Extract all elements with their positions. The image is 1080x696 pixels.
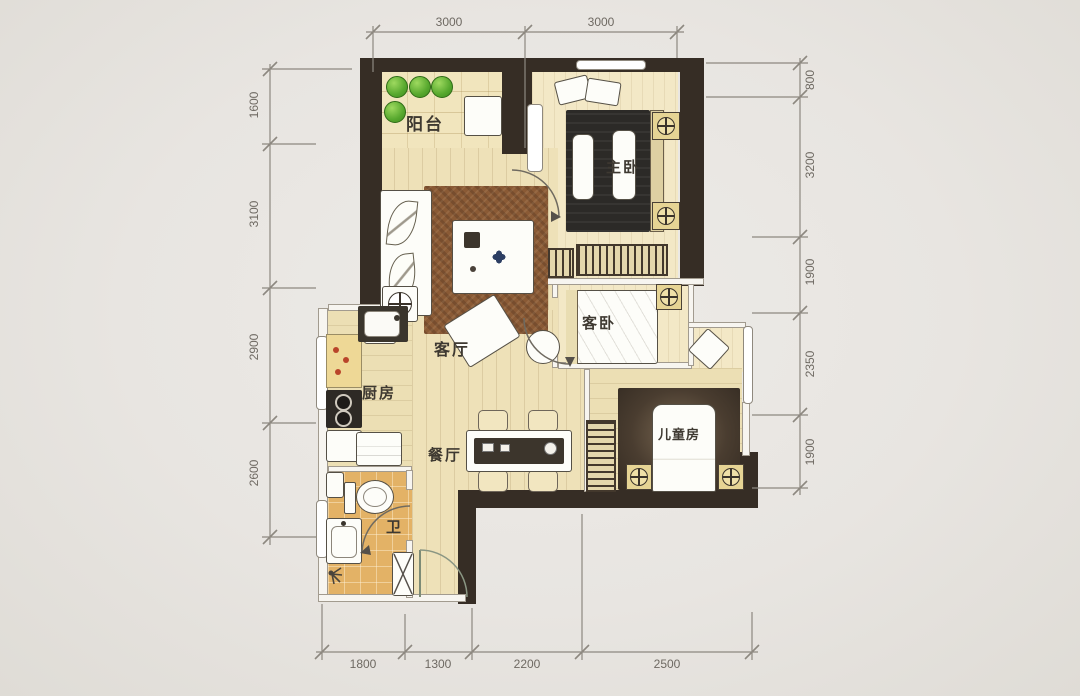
pillow xyxy=(572,134,594,200)
lamp-icon xyxy=(657,117,675,135)
cushion xyxy=(584,77,621,106)
wall-top xyxy=(360,58,704,72)
lamp-icon xyxy=(657,207,675,225)
dim-label: 1300 xyxy=(425,657,452,671)
dim-label: 1800 xyxy=(350,657,377,671)
dim-label: 1900 xyxy=(803,258,817,285)
dim-label: 1600 xyxy=(247,91,261,118)
bath-fixture xyxy=(326,472,344,498)
washbasin-inner xyxy=(331,526,357,558)
lamp-icon xyxy=(630,468,648,486)
dim-label: 3000 xyxy=(436,15,463,29)
dim-label: 2200 xyxy=(514,657,541,671)
dim-tick xyxy=(366,25,684,39)
wall-nook-top xyxy=(688,322,746,328)
plant-icon xyxy=(384,101,406,123)
dim-label: 2900 xyxy=(247,333,261,360)
dim-label: 2350 xyxy=(803,350,817,377)
wall-left-upper xyxy=(360,58,382,312)
room-label-master: 主卧 xyxy=(606,156,640,177)
wall-bottom-right-horizontal xyxy=(458,490,758,508)
toilet-bowl-inner xyxy=(363,487,387,507)
window-children-bay xyxy=(743,326,753,404)
duct-shaft xyxy=(392,552,414,596)
table-decor xyxy=(464,232,480,248)
basin-faucet-icon xyxy=(341,521,346,526)
stove-burner-icon xyxy=(335,394,352,411)
plant-icon xyxy=(386,76,408,98)
food-icon xyxy=(335,369,341,375)
window-master-top xyxy=(576,60,646,70)
room-label-bath: 卫 xyxy=(386,516,403,537)
dining-chair xyxy=(528,470,558,492)
wardrobe xyxy=(576,244,668,276)
food-icon xyxy=(333,347,339,353)
plate xyxy=(544,442,557,455)
entry-corridor-floor xyxy=(412,492,458,598)
fridge xyxy=(356,432,402,466)
dim-tick xyxy=(315,645,759,659)
children-bed xyxy=(652,404,716,492)
wall-right-upper xyxy=(680,58,704,286)
room-label-children: 儿童房 xyxy=(658,424,700,443)
lamp-icon xyxy=(660,288,678,306)
plant-icon xyxy=(409,76,431,98)
dish xyxy=(482,443,494,452)
dim-label: 3000 xyxy=(588,15,615,29)
dim-tick xyxy=(793,56,807,495)
toilet-bowl xyxy=(356,480,394,514)
stove xyxy=(326,390,362,428)
nightstand xyxy=(652,202,680,230)
food-icon xyxy=(343,357,349,363)
dining-chair xyxy=(478,410,508,432)
window-mid-vertical xyxy=(527,104,543,172)
dim-tick xyxy=(263,62,277,544)
dining-chair xyxy=(478,470,508,492)
room-label-kitchen: 厨房 xyxy=(362,382,396,403)
room-label-balcony: 阳台 xyxy=(406,110,444,135)
nightstand xyxy=(652,112,680,140)
dim-label: 3100 xyxy=(247,200,261,227)
children-wardrobe xyxy=(586,420,616,492)
nightstand xyxy=(718,464,744,490)
dish xyxy=(500,444,510,452)
dim-label: 2500 xyxy=(654,657,681,671)
nightstand xyxy=(656,284,682,310)
dim-label: 1900 xyxy=(803,438,817,465)
wall-guest-left-a xyxy=(552,284,558,298)
dining-chair xyxy=(528,410,558,432)
guest-headboard xyxy=(566,290,578,364)
dim-label: 800 xyxy=(803,70,817,90)
stove-burner-icon xyxy=(335,410,352,427)
wall-children-right xyxy=(742,402,750,456)
flower-decor xyxy=(492,250,506,264)
washing-machine xyxy=(464,96,502,136)
wall-bottom-right-vertical xyxy=(458,508,476,604)
toilet-tank xyxy=(344,482,356,514)
dim-label: 3200 xyxy=(803,151,817,178)
lamp-icon xyxy=(722,468,740,486)
side-table-round xyxy=(526,330,560,364)
nightstand xyxy=(626,464,652,490)
wall-bath-hall-a xyxy=(406,470,413,490)
plant-icon xyxy=(431,76,453,98)
room-label-dining: 餐厅 xyxy=(428,444,462,465)
room-label-living: 客厅 xyxy=(434,336,470,360)
faucet-icon xyxy=(394,315,400,321)
dim-label: 2600 xyxy=(247,459,261,486)
room-label-guest: 客卧 xyxy=(582,312,616,333)
table-decor-dot xyxy=(470,266,476,272)
washbasin xyxy=(326,518,362,564)
kitchen-counter xyxy=(326,334,362,388)
